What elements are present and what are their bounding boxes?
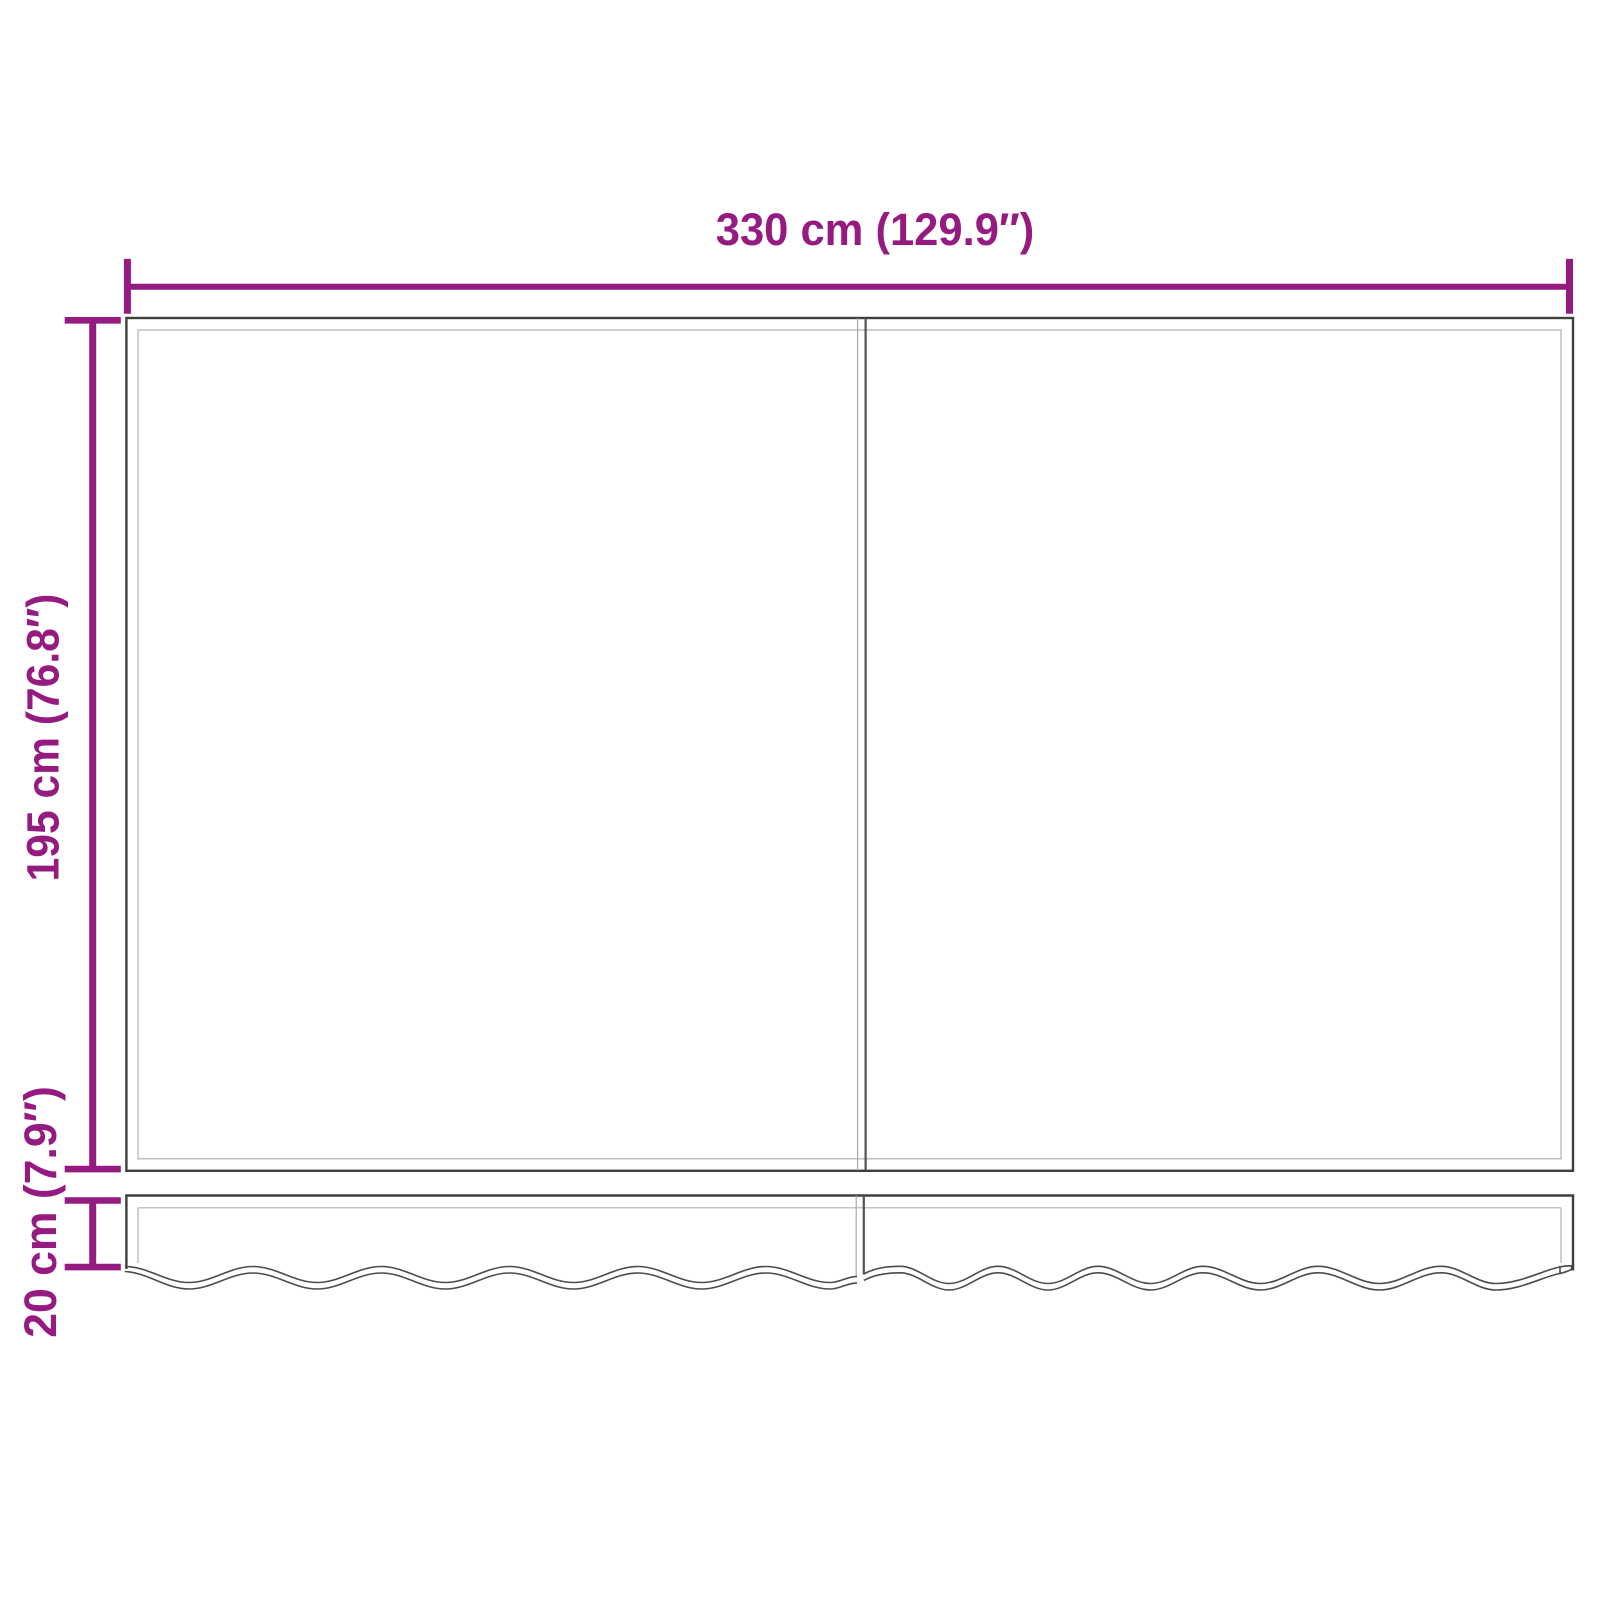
svg-text:330 cm (129.9″): 330 cm (129.9″) <box>716 205 1034 255</box>
svg-text:20 cm (7.9″): 20 cm (7.9″) <box>14 1086 66 1338</box>
svg-text:195 cm (76.8″): 195 cm (76.8″) <box>18 594 69 882</box>
